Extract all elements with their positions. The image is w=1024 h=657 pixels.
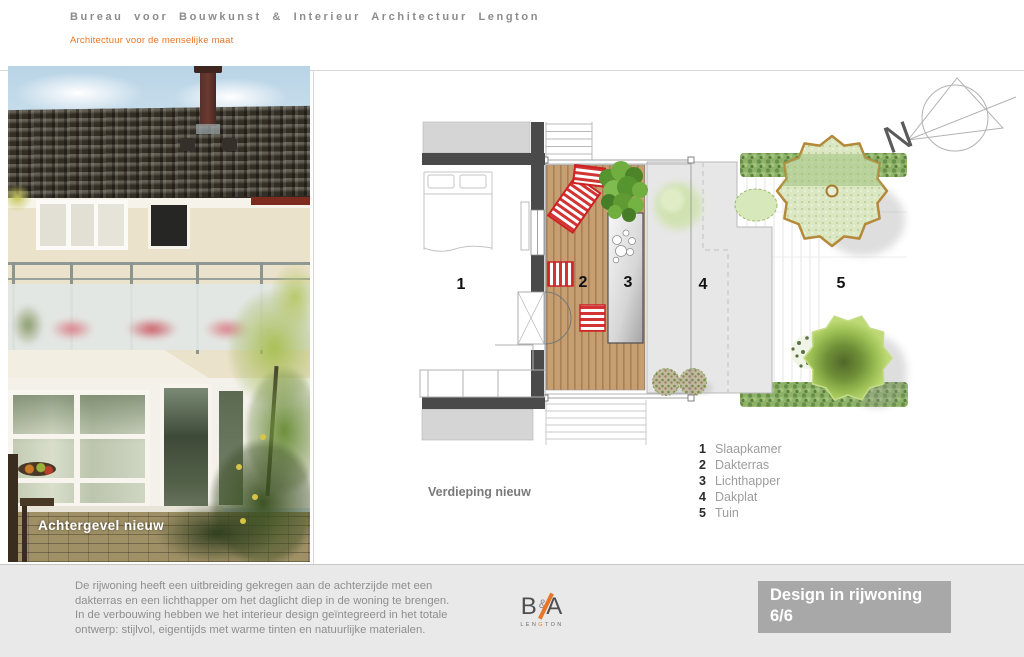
photo-fruit-bowl: [18, 462, 56, 476]
photo-roof-vent: [222, 138, 237, 151]
photo-window-mullion: [10, 478, 148, 483]
photo-roof: [8, 106, 310, 204]
photo-garden-chair: [22, 506, 27, 562]
legend-item: 4Dakplat: [694, 489, 782, 505]
logo-wordmark: LENGTON: [510, 622, 574, 628]
photo-fruit: [252, 494, 258, 500]
photo-red-fascia: [251, 197, 310, 205]
legend-item: 1Slaapkamer: [694, 441, 782, 457]
deck-mat: [548, 262, 573, 286]
project-title: Design in rijwoning: [770, 585, 951, 606]
plan-number-4: 4: [699, 276, 708, 293]
photo-garden-chair: [8, 454, 18, 562]
plan-number-1: 1: [457, 276, 466, 293]
photo-chimney-cap: [194, 66, 222, 73]
photo-garden-table: [20, 498, 54, 506]
photo-balcony-plant: [12, 304, 44, 346]
presentation-slide: Bureau voor Bouwkunst & Interieur Archit…: [0, 0, 1024, 657]
walls: [422, 122, 545, 440]
page-subtitle: Architectuur voor de menselijke maat: [70, 35, 234, 46]
photo-window-mullion: [74, 392, 80, 506]
photo-roof-panel: [196, 124, 220, 134]
photo-window-mullion: [66, 202, 71, 248]
photo-window-mullion: [10, 434, 148, 439]
photo-fruit: [240, 518, 246, 524]
vertical-divider: [313, 70, 314, 564]
photo-balcony-rail: [8, 262, 310, 265]
radiator: [521, 202, 529, 250]
plan-legend: 1Slaapkamer 2Dakterras 3Lichthapper 4Dak…: [694, 441, 782, 521]
photo-balcony-rail: [8, 278, 310, 280]
photo-dark-window: [148, 202, 190, 249]
north-arrow-icon: N: [878, 78, 1016, 162]
photo-fruit: [236, 464, 242, 470]
legend-item: 5Tuin: [694, 505, 782, 521]
plan-caption: Verdieping nieuw: [428, 485, 531, 499]
plan-number-3: 3: [624, 274, 633, 291]
bed: [424, 172, 492, 251]
project-title-box: Design in rijwoning 6/6: [758, 581, 951, 633]
facade-photo: Achtergevel nieuw: [8, 66, 310, 562]
photo-back-door: [160, 384, 212, 514]
legend-item: 3Lichthapper: [694, 473, 782, 489]
deck-mat: [580, 305, 605, 331]
photo-flowers: [126, 318, 178, 340]
photo-window: [94, 200, 128, 250]
project-description: De rijwoning heeft een uitbreiding gekre…: [75, 579, 475, 638]
garden-bush: [735, 189, 777, 221]
photo-chimney: [200, 66, 216, 126]
photo-caption: Achtergevel nieuw: [38, 518, 164, 533]
stairs-top: [546, 122, 592, 160]
photo-foliage: [270, 262, 310, 332]
legend-item: 2Dakterras: [694, 457, 782, 473]
photo-roof-vent: [180, 138, 195, 151]
photo-flowers: [50, 318, 94, 340]
logo-letter-b: B: [521, 593, 538, 620]
project-page-number: 6/6: [770, 606, 951, 627]
closet: [420, 345, 545, 397]
photo-leaf: [8, 184, 32, 212]
floor-plan: 1 2 3 4 5 N: [415, 60, 1020, 460]
photo-fruit: [260, 434, 266, 440]
stairs-bottom: [546, 400, 646, 445]
logo-bia: B&A LENGTON: [510, 586, 574, 628]
plan-number-2: 2: [579, 274, 588, 291]
tree-soft: [650, 178, 706, 234]
plan-number-5: 5: [837, 275, 846, 292]
page-title: Bureau voor Bouwkunst & Interieur Archit…: [70, 11, 540, 23]
photo-foliage: [156, 502, 276, 562]
void-x: [518, 292, 544, 344]
